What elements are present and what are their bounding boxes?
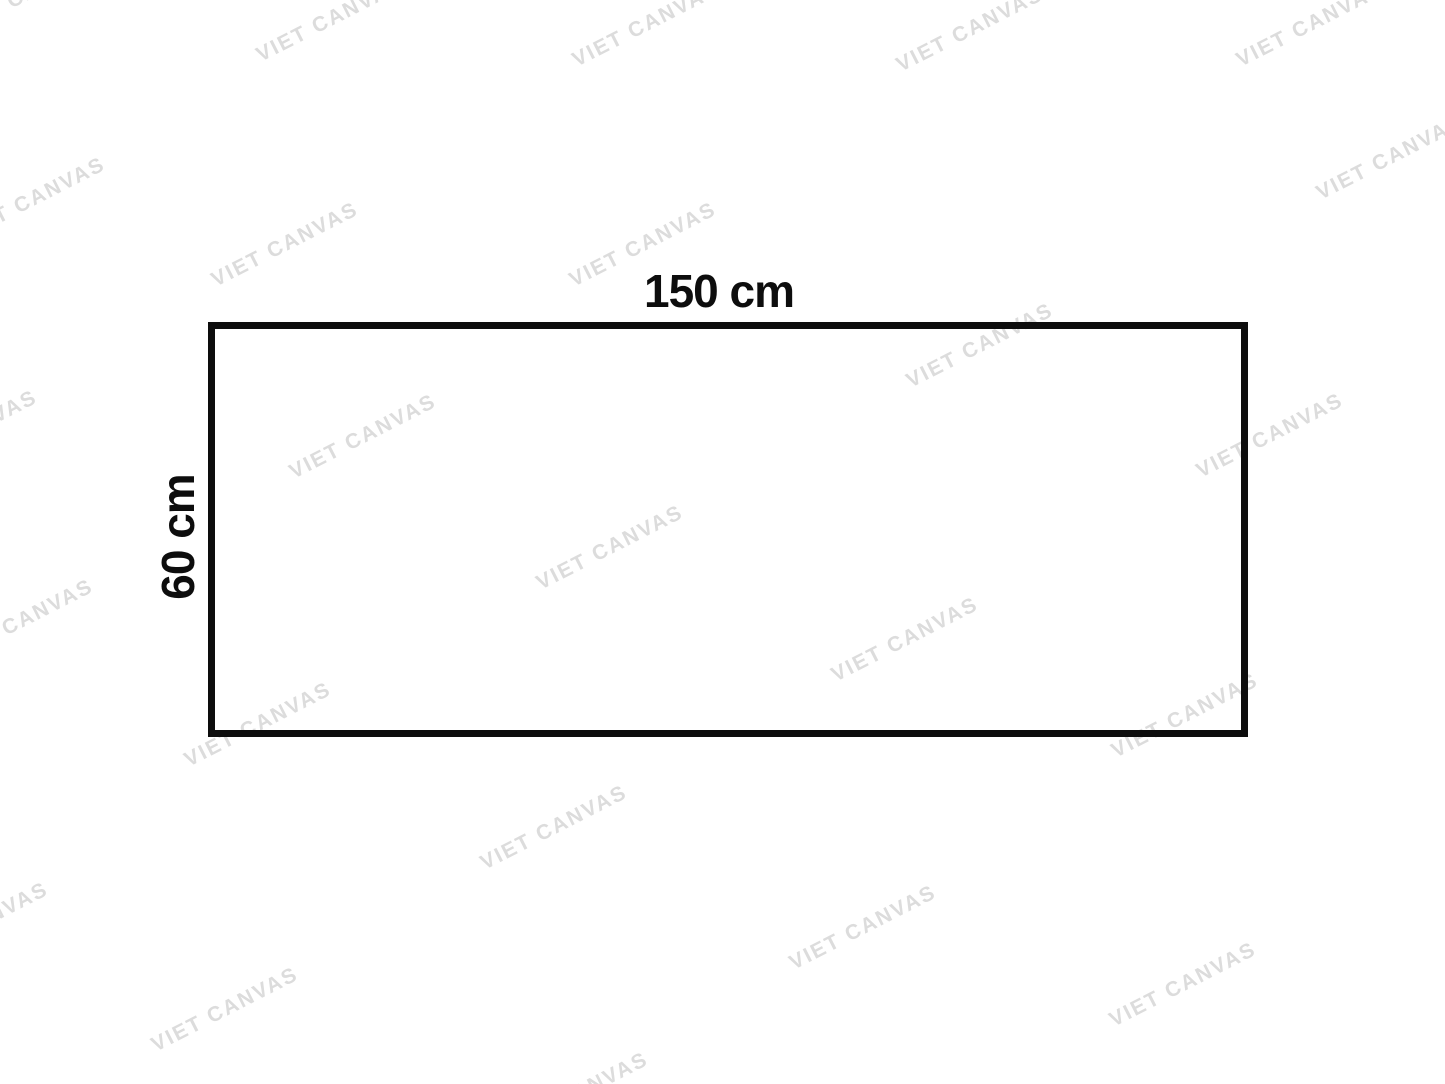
width-dimension-label: 150 cm bbox=[644, 264, 794, 318]
watermark-text: VIET CANVAS bbox=[148, 963, 303, 1058]
watermark-text: VIET CANVAS bbox=[893, 0, 1048, 77]
watermark-text: VIET CANVAS bbox=[0, 878, 52, 973]
watermark-text: VIET CANVAS bbox=[253, 0, 408, 67]
watermark-text: VIET CANVAS bbox=[0, 0, 102, 42]
watermark-text: VIET CANVAS bbox=[208, 198, 363, 293]
canvas-rectangle bbox=[208, 322, 1248, 737]
canvas-mockup: VIET CANVASVIET CANVASVIET CANVASVIET CA… bbox=[0, 0, 1445, 1084]
watermark-text: VIET CANVAS bbox=[477, 781, 632, 876]
watermark-text: VIET CANVAS bbox=[498, 1048, 653, 1084]
watermark-text: VIET CANVAS bbox=[0, 386, 41, 481]
height-dimension-label: 60 cm bbox=[151, 474, 205, 599]
watermark-text: VIET CANVAS bbox=[786, 881, 941, 976]
watermark-text: VIET CANVAS bbox=[1233, 0, 1388, 72]
watermark-text: VIET CANVAS bbox=[0, 575, 97, 670]
watermark-text: VIET CANVAS bbox=[569, 0, 724, 72]
watermark-text: VIET CANVAS bbox=[0, 153, 109, 248]
watermark-text: VIET CANVAS bbox=[1106, 938, 1261, 1033]
watermark-text: VIET CANVAS bbox=[1313, 111, 1445, 206]
